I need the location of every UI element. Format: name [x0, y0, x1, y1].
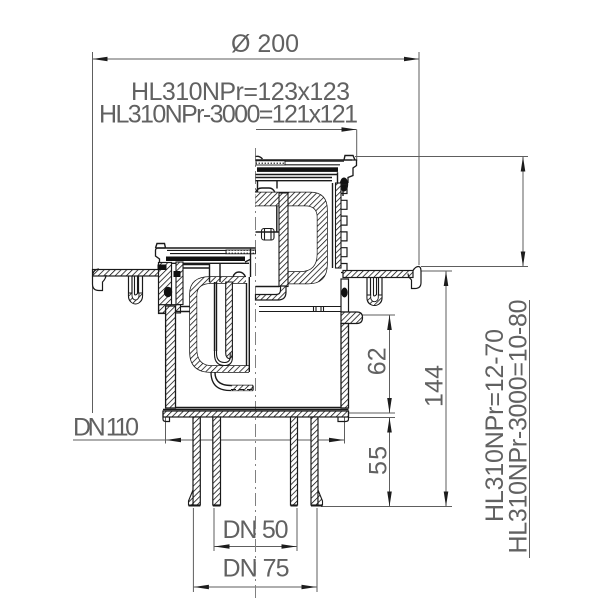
- svg-text:DN 110: DN 110: [73, 414, 139, 442]
- svg-text:55: 55: [365, 446, 393, 475]
- svg-text:Ø 200: Ø 200: [231, 30, 299, 58]
- svg-text:HL310NPr-3000=121x121: HL310NPr-3000=121x121: [99, 101, 358, 129]
- svg-text:144: 144: [421, 365, 449, 407]
- svg-text:62: 62: [364, 347, 392, 375]
- svg-text:HL310NPr-3000=10-80: HL310NPr-3000=10-80: [505, 300, 533, 554]
